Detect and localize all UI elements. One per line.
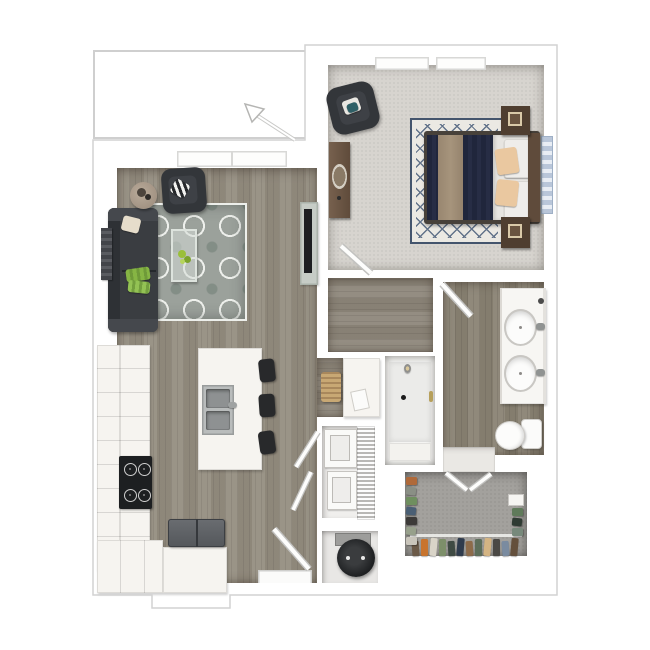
headboard [528, 133, 540, 222]
vanity-faucet [536, 369, 545, 376]
sofa-pillow-green [127, 280, 150, 294]
laundry-wire-shelf [357, 426, 375, 520]
coffee-table-plant [180, 259, 185, 264]
water-heater-cap [346, 556, 350, 560]
water-heater [337, 539, 375, 577]
entry-threshold [258, 570, 312, 583]
wall-art [101, 228, 112, 280]
bedroom-window-sill [375, 57, 429, 70]
nightstand-decor [508, 224, 522, 238]
bedroom-hall-closet-floor [328, 278, 433, 352]
bar-stool [258, 393, 276, 417]
vanity-faucet [536, 323, 545, 330]
sink-basin [206, 389, 230, 408]
dresser-mirror-tray [332, 164, 347, 189]
washer-door [330, 435, 350, 461]
sofa-armrest [108, 319, 158, 332]
wicker-basket [321, 372, 341, 402]
side-table-decor [145, 194, 151, 200]
closet-shelf-box [508, 494, 524, 506]
bed-runner [438, 135, 463, 220]
shower-curb [389, 443, 431, 461]
bar-stool [258, 358, 276, 383]
bedroom-side-window [541, 136, 553, 214]
sink-faucet [228, 402, 237, 408]
nightstand-decor [508, 112, 522, 126]
cooktop-burner [124, 489, 137, 502]
living-window-mullion [231, 151, 233, 167]
patio-outline [93, 50, 308, 139]
shower-floor [389, 362, 431, 442]
kitchen-peninsula [163, 547, 227, 593]
closet-clothes-left [406, 477, 417, 545]
bed-pillow-peach [494, 147, 519, 176]
vanity-backsplash [543, 288, 546, 404]
dryer-door [332, 477, 351, 503]
vanity-decor [538, 298, 544, 304]
shower-head [404, 364, 411, 373]
cooktop-burner [124, 463, 137, 476]
tv-screen [304, 209, 312, 273]
sink-drain [519, 372, 522, 375]
closet-clothes-right [512, 508, 523, 536]
sink-basin [206, 411, 230, 430]
kitchen-counter-bottom [97, 540, 163, 593]
bar-stool [257, 430, 276, 455]
dresser-knob [337, 196, 341, 200]
water-heater-cap [361, 556, 365, 560]
floorplan-render [0, 0, 650, 650]
coffee-table-plant [184, 256, 191, 263]
bathroom-closet-passage [443, 447, 495, 472]
cooktop-burner [138, 489, 151, 502]
bedroom-window-sill [436, 57, 486, 70]
sink-drain [519, 326, 522, 329]
bed-pillow-peach [495, 179, 520, 207]
refrigerator-door-split [196, 519, 198, 547]
toilet-bowl [495, 421, 525, 450]
closet-clothes-bottom [412, 537, 524, 556]
shower-drain [401, 395, 406, 400]
shower-control [429, 391, 433, 402]
cooktop-burner [138, 463, 151, 476]
